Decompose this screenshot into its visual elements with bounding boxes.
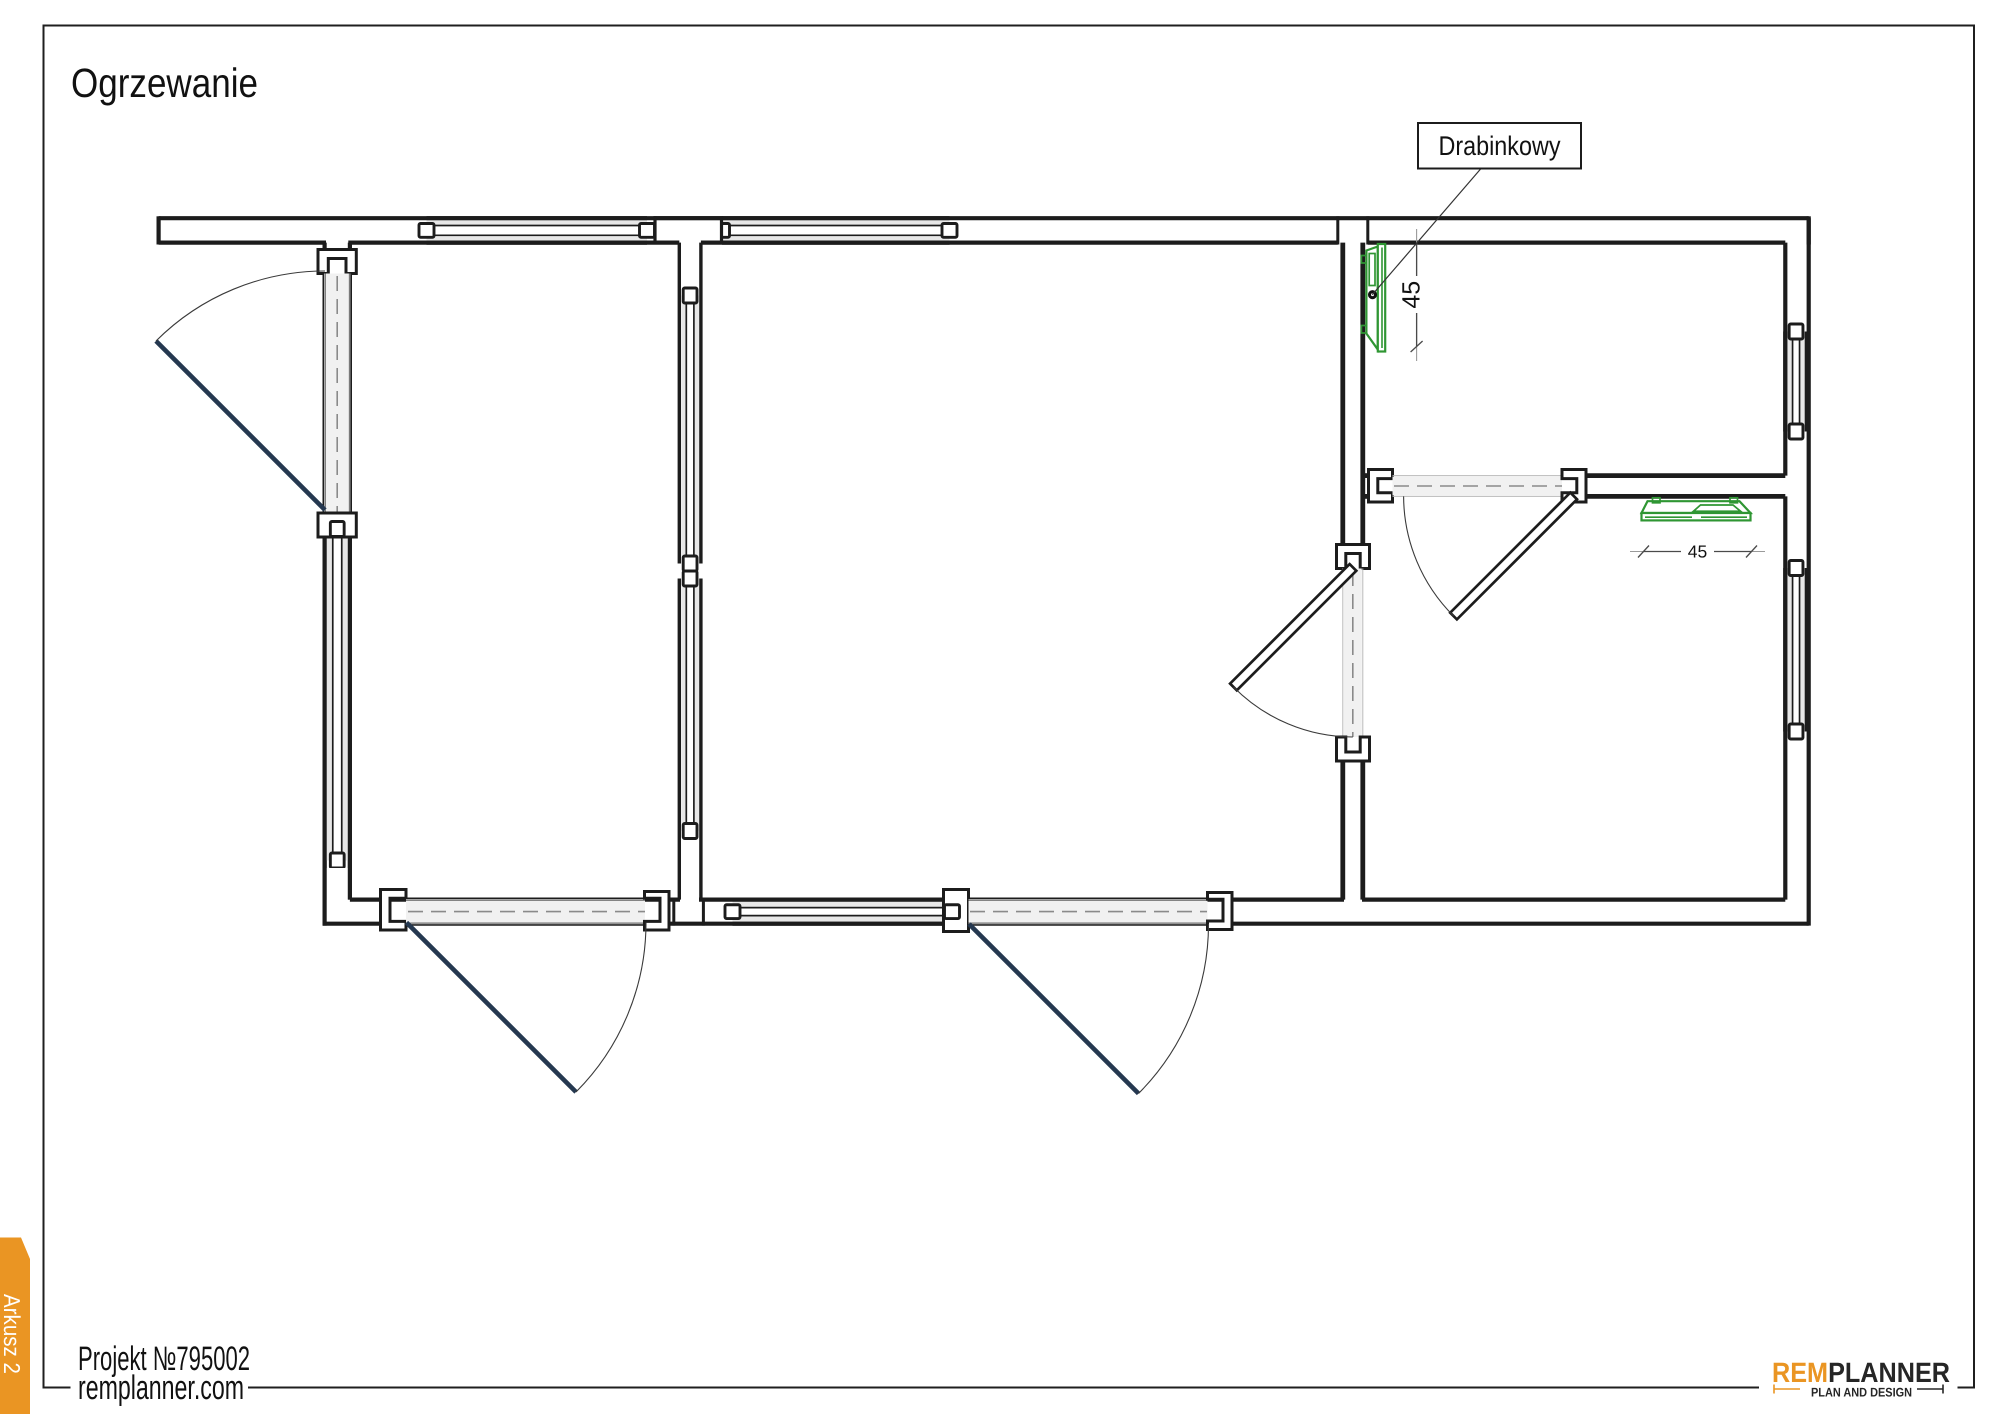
svg-text:remplanner.com: remplanner.com: [78, 1369, 244, 1407]
svg-text:Drabinkowy: Drabinkowy: [1439, 131, 1561, 161]
svg-text:Ogrzewanie: Ogrzewanie: [71, 60, 258, 106]
svg-text:45: 45: [1398, 281, 1426, 309]
svg-text:45: 45: [1688, 542, 1707, 562]
svg-text:PLAN AND DESIGN: PLAN AND DESIGN: [1811, 1386, 1912, 1400]
svg-text:Arkusz 2: Arkusz 2: [0, 1294, 25, 1374]
svg-text:REMPLANNER: REMPLANNER: [1772, 1357, 1950, 1388]
